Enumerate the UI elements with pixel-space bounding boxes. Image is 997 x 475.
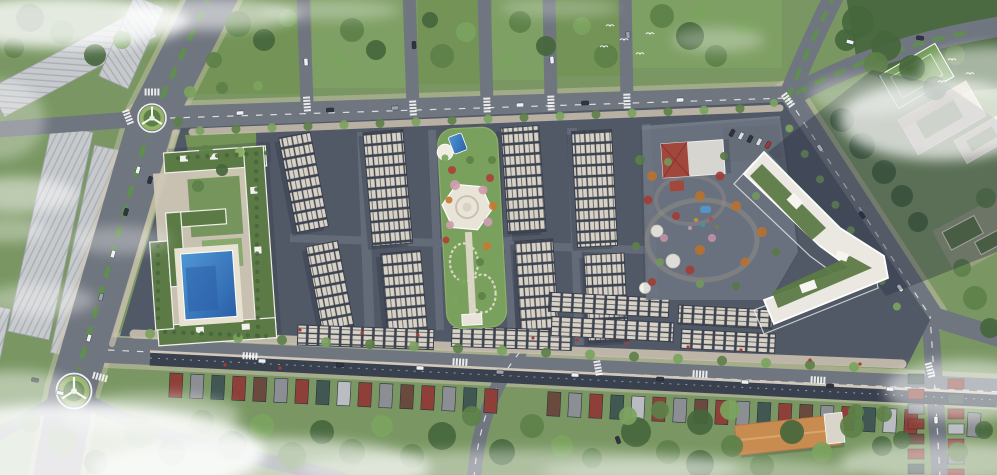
- park-kiosk: [462, 314, 483, 326]
- roundabout-northwest: [134, 100, 170, 136]
- podium-pool: [174, 244, 243, 326]
- masterplan-canvas: [0, 0, 997, 475]
- aerial-render: [0, 0, 997, 475]
